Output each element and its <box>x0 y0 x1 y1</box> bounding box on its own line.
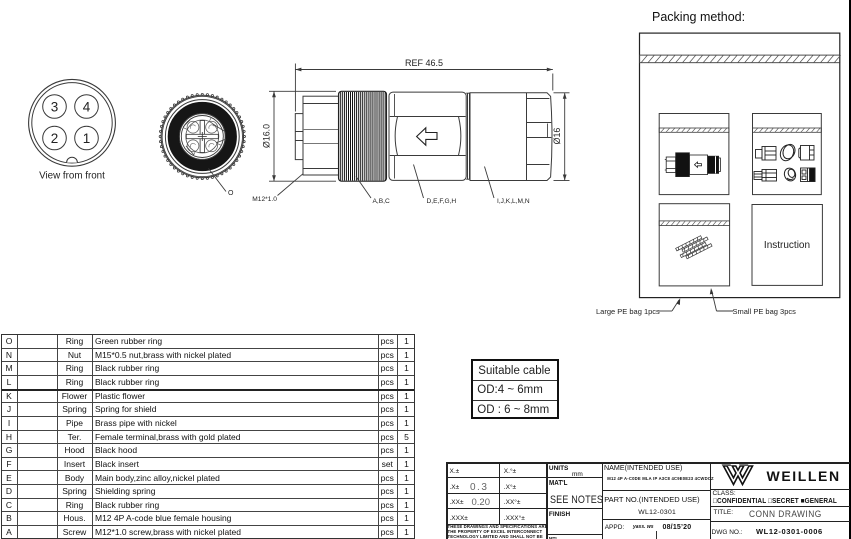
svg-text:A,B,C: A,B,C <box>373 198 390 205</box>
svg-text:Ø16: Ø16 <box>552 128 562 145</box>
svg-text:O: O <box>228 190 234 197</box>
svg-text:Packing method:: Packing method: <box>652 10 745 24</box>
svg-text:2: 2 <box>51 131 59 146</box>
svg-text:View from front: View from front <box>39 170 105 181</box>
svg-text:I,J,K,L,M,N: I,J,K,L,M,N <box>497 198 530 205</box>
svg-text:3: 3 <box>51 99 59 114</box>
svg-text:4: 4 <box>83 99 91 114</box>
svg-text:Instruction: Instruction <box>764 240 810 251</box>
svg-text:Small PE bag 3pcs: Small PE bag 3pcs <box>733 307 797 316</box>
svg-text:Large PE bag 1pcs: Large PE bag 1pcs <box>596 307 660 316</box>
svg-text:D,E,F,G,H: D,E,F,G,H <box>427 198 457 205</box>
svg-text:Ø16.0: Ø16.0 <box>262 124 272 148</box>
svg-text:M12*1.0: M12*1.0 <box>252 196 277 203</box>
svg-text:REF 46.5: REF 46.5 <box>405 58 443 68</box>
svg-text:1: 1 <box>83 131 91 146</box>
